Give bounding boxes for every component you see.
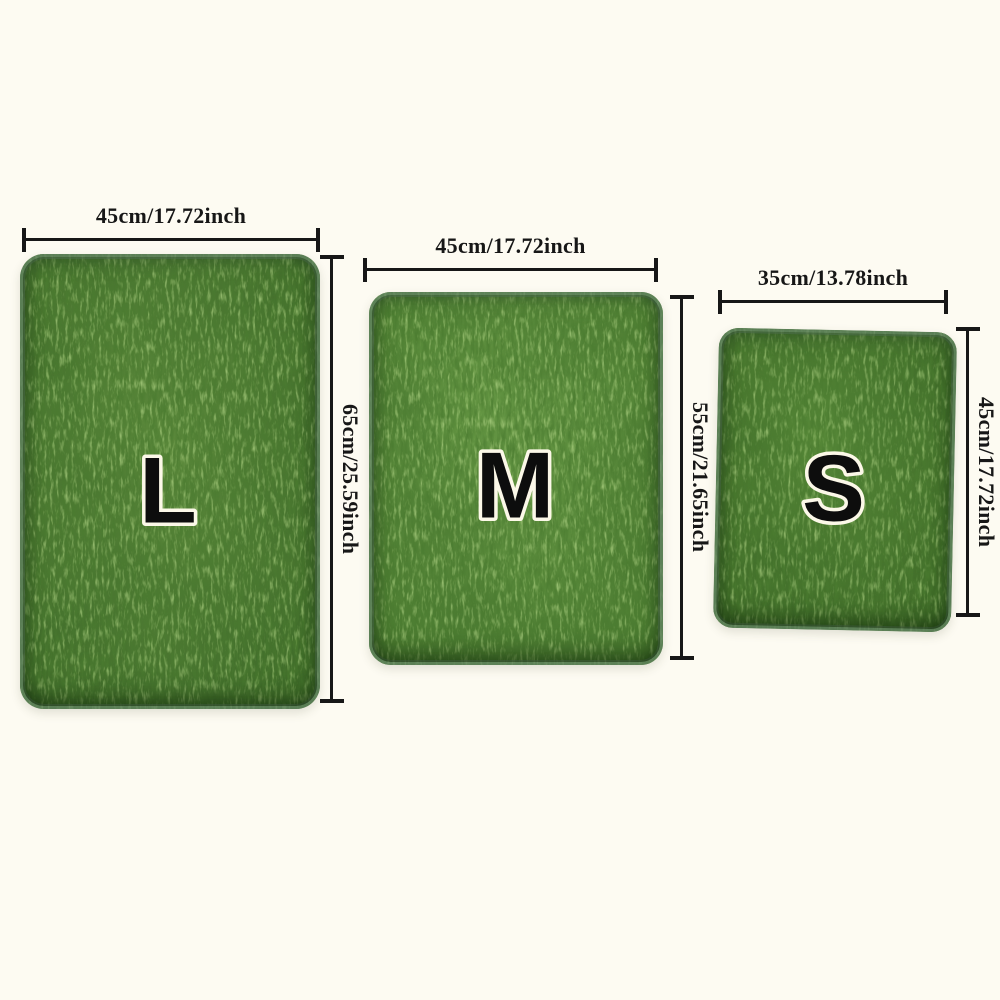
height-dimension-label-medium: 55cm/21.65inch [686,295,714,660]
width-dimension-label-medium: 45cm/17.72inch [363,233,658,259]
dimension-tick [22,228,26,252]
rug-large-photo: L [20,254,320,709]
rug-small-texture: S [713,328,957,633]
dimension-tick [316,228,320,252]
width-dimension-line-medium [363,268,658,271]
height-dimension-label-large: 65cm/25.59inch [336,255,364,703]
width-dimension-label-small: 35cm/13.78inch [718,265,948,291]
size-letter-small: S [801,435,866,541]
width-dimension-line-small [718,300,948,303]
width-dimension-line-large [22,238,320,241]
dimension-tick [363,258,367,282]
rug-medium-texture: M [369,292,663,665]
dimension-tick [944,290,948,314]
size-letter-large: L [139,438,196,543]
size-letter-medium: M [476,433,554,538]
dimension-tick [654,258,658,282]
rug-medium-photo: M [369,292,663,665]
height-dimension-label-small: 45cm/17.72inch [972,327,1000,617]
product-size-chart: 45cm/17.72inch L 65cm/25.59inch 45cm/17.… [0,0,1000,1000]
height-dimension-line-small [966,327,969,617]
rug-large-texture: L [20,254,320,709]
dimension-tick [718,290,722,314]
width-dimension-label-large: 45cm/17.72inch [22,203,320,229]
height-dimension-line-medium [680,295,683,660]
rug-small-photo: S [713,328,957,633]
height-dimension-line-large [330,255,333,703]
